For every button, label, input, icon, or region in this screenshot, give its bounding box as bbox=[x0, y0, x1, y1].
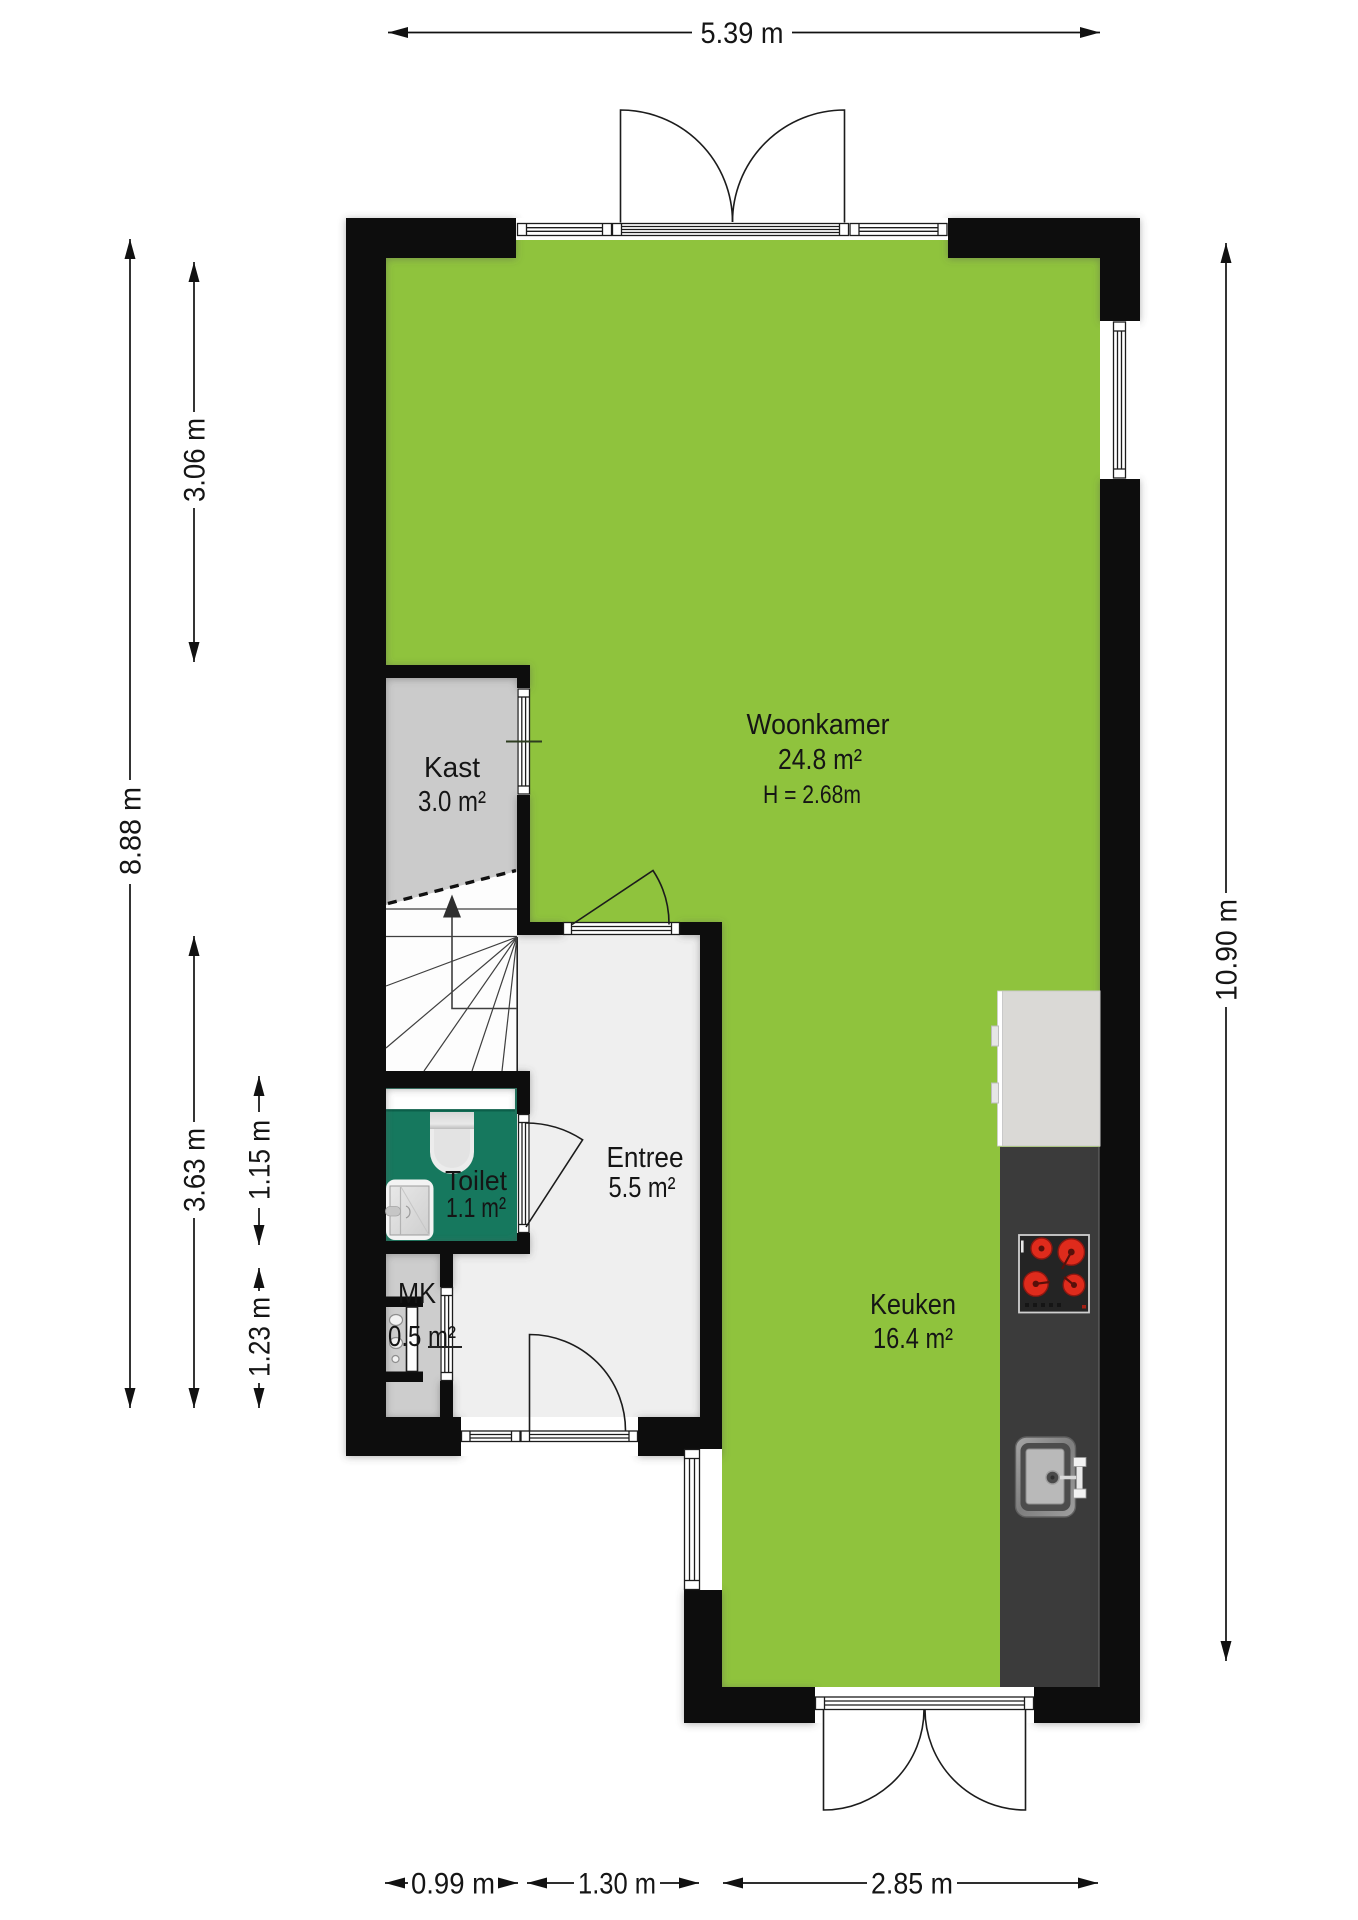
svg-text:1.15 m: 1.15 m bbox=[244, 1120, 277, 1200]
svg-text:1.30 m: 1.30 m bbox=[578, 1868, 656, 1901]
svg-text:1.23 m: 1.23 m bbox=[244, 1297, 277, 1377]
svg-text:5.5 m²: 5.5 m² bbox=[609, 1172, 676, 1204]
svg-text:1.1 m²: 1.1 m² bbox=[446, 1192, 506, 1223]
svg-text:MK: MK bbox=[398, 1278, 437, 1310]
svg-text:3.63 m: 3.63 m bbox=[179, 1128, 212, 1212]
svg-text:3.0 m²: 3.0 m² bbox=[418, 786, 486, 818]
svg-text:Keuken: Keuken bbox=[870, 1289, 956, 1321]
svg-text:5.39 m: 5.39 m bbox=[701, 17, 784, 50]
svg-text:3.06 m: 3.06 m bbox=[179, 418, 212, 502]
svg-text:16.4 m²: 16.4 m² bbox=[873, 1323, 953, 1355]
svg-text:2.85 m: 2.85 m bbox=[871, 1868, 953, 1901]
svg-text:8.88 m: 8.88 m bbox=[115, 787, 148, 875]
svg-text:0.99 m: 0.99 m bbox=[411, 1868, 495, 1901]
svg-text:0.5 m²: 0.5 m² bbox=[388, 1321, 456, 1353]
svg-text:Entree: Entree bbox=[607, 1142, 684, 1174]
svg-text:24.8 m²: 24.8 m² bbox=[778, 744, 862, 776]
svg-text:10.90 m: 10.90 m bbox=[1211, 899, 1244, 1001]
svg-text:H = 2.68m: H = 2.68m bbox=[763, 781, 861, 809]
svg-text:Woonkamer: Woonkamer bbox=[747, 709, 890, 741]
svg-text:Kast: Kast bbox=[424, 752, 480, 784]
